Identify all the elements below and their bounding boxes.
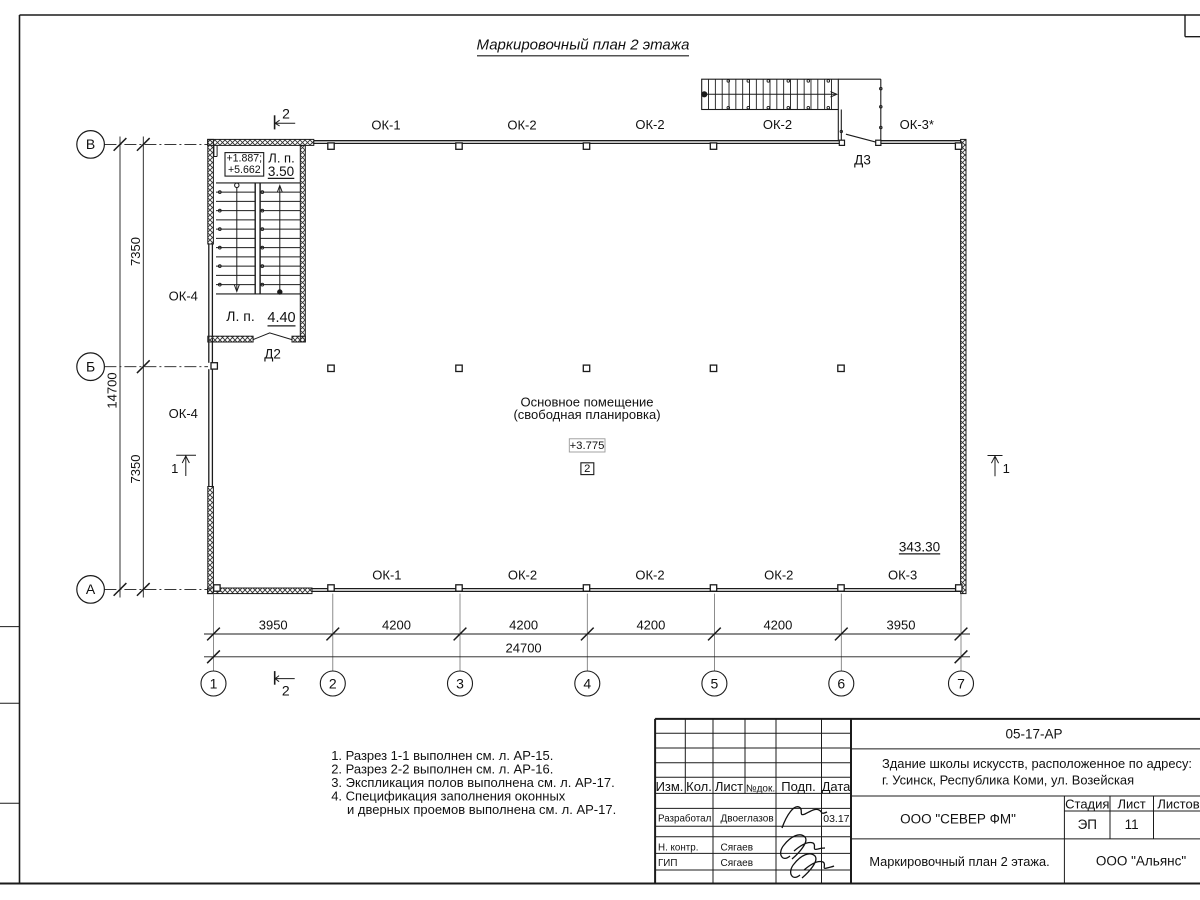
svg-text:7350: 7350 bbox=[128, 455, 143, 484]
svg-text:Сягаев: Сягаев bbox=[721, 858, 754, 869]
svg-text:4.40: 4.40 bbox=[267, 310, 295, 326]
svg-text:Маркировочный план 2 этажа.: Маркировочный план 2 этажа. bbox=[869, 854, 1049, 869]
svg-text:3: 3 bbox=[456, 675, 464, 691]
svg-text:ОК-2: ОК-2 bbox=[635, 568, 664, 583]
svg-text:3950: 3950 bbox=[259, 618, 288, 633]
svg-text:3.50: 3.50 bbox=[268, 164, 294, 179]
svg-text:Лист: Лист bbox=[715, 779, 743, 794]
svg-text:2: 2 bbox=[584, 463, 590, 475]
svg-text:03.17: 03.17 bbox=[823, 813, 849, 825]
svg-text:ОК-3*: ОК-3* bbox=[900, 117, 934, 132]
svg-text:7350: 7350 bbox=[128, 237, 143, 266]
svg-text:11: 11 bbox=[1125, 817, 1139, 832]
svg-text:5: 5 bbox=[711, 675, 719, 691]
svg-text:А: А bbox=[86, 581, 96, 597]
svg-text:6: 6 bbox=[837, 675, 845, 691]
svg-text:2: 2 bbox=[329, 675, 337, 691]
svg-text:ОК-1: ОК-1 bbox=[372, 567, 401, 582]
svg-text:№док.: №док. bbox=[746, 783, 775, 794]
svg-text:Д2: Д2 bbox=[264, 347, 281, 362]
svg-text:ОК-3: ОК-3 bbox=[888, 567, 917, 582]
svg-text:24700: 24700 bbox=[506, 640, 542, 655]
svg-text:Б: Б bbox=[86, 359, 95, 375]
svg-text:1: 1 bbox=[171, 461, 178, 476]
svg-text:Л. п.: Л. п. bbox=[226, 308, 254, 324]
svg-text:Сягаев: Сягаев bbox=[721, 843, 754, 854]
svg-text:4200: 4200 bbox=[509, 618, 538, 633]
svg-text:и дверных проемов выполнена см: и дверных проемов выполнена см. л. АР-17… bbox=[347, 802, 616, 817]
svg-text:4200: 4200 bbox=[636, 618, 665, 633]
svg-text:ОК-4: ОК-4 bbox=[169, 289, 198, 304]
svg-text:Двоеглазов: Двоеглазов bbox=[721, 814, 774, 825]
svg-text:+3.775: +3.775 bbox=[570, 440, 605, 452]
svg-text:Маркировочный план 2 этажа: Маркировочный план 2 этажа bbox=[477, 37, 690, 54]
svg-text:г. Усинск, Республика Коми, ул: г. Усинск, Республика Коми, ул. Возейска… bbox=[882, 773, 1134, 788]
svg-text:(свободная планировка): (свободная планировка) bbox=[513, 407, 660, 422]
svg-text:Здание школы искусств, располо: Здание школы искусств, расположенное по … bbox=[882, 756, 1192, 771]
svg-text:3950: 3950 bbox=[887, 618, 916, 633]
svg-text:Стадия: Стадия bbox=[1065, 796, 1109, 811]
svg-text:ОК-4: ОК-4 bbox=[169, 406, 198, 421]
svg-text:В: В bbox=[86, 136, 95, 152]
svg-text:14700: 14700 bbox=[105, 372, 120, 408]
svg-text:2: 2 bbox=[282, 106, 290, 122]
svg-text:4: 4 bbox=[583, 675, 591, 691]
svg-text:7: 7 bbox=[957, 675, 965, 691]
svg-text:Кол.: Кол. bbox=[686, 779, 712, 794]
svg-text:ОК-1: ОК-1 bbox=[371, 118, 400, 133]
svg-text:05-17-АР: 05-17-АР bbox=[1005, 727, 1062, 742]
svg-text:+1.887;: +1.887; bbox=[226, 153, 262, 165]
svg-text:+5.662: +5.662 bbox=[228, 164, 261, 176]
svg-text:ООО "Альянс": ООО "Альянс" bbox=[1096, 853, 1186, 868]
svg-text:ООО "СЕВЕР ФМ": ООО "СЕВЕР ФМ" bbox=[900, 811, 1016, 826]
svg-text:1: 1 bbox=[210, 675, 218, 691]
svg-text:Н. контр.: Н. контр. bbox=[658, 843, 698, 854]
svg-text:Лист: Лист bbox=[1117, 796, 1145, 811]
svg-text:4200: 4200 bbox=[763, 618, 792, 633]
svg-text:343.30: 343.30 bbox=[899, 540, 940, 555]
svg-text:ОК-2: ОК-2 bbox=[764, 568, 793, 583]
svg-text:Листов: Листов bbox=[1157, 796, 1199, 811]
svg-text:Дата: Дата bbox=[822, 779, 852, 794]
svg-text:ГИП: ГИП bbox=[658, 858, 677, 869]
svg-text:Разработал: Разработал bbox=[658, 814, 712, 825]
svg-text:ОК-2: ОК-2 bbox=[507, 118, 536, 133]
svg-text:4200: 4200 bbox=[382, 618, 411, 633]
svg-text:ОК-2: ОК-2 bbox=[763, 117, 792, 132]
svg-text:Подп.: Подп. bbox=[781, 779, 816, 794]
svg-text:ОК-2: ОК-2 bbox=[508, 567, 537, 582]
svg-text:1: 1 bbox=[1003, 461, 1010, 476]
svg-text:Изм.: Изм. bbox=[656, 779, 684, 794]
svg-text:Д3: Д3 bbox=[854, 153, 871, 168]
svg-text:ОК-2: ОК-2 bbox=[635, 117, 664, 132]
svg-text:ЭП: ЭП bbox=[1078, 817, 1097, 832]
svg-text:2: 2 bbox=[282, 683, 290, 699]
